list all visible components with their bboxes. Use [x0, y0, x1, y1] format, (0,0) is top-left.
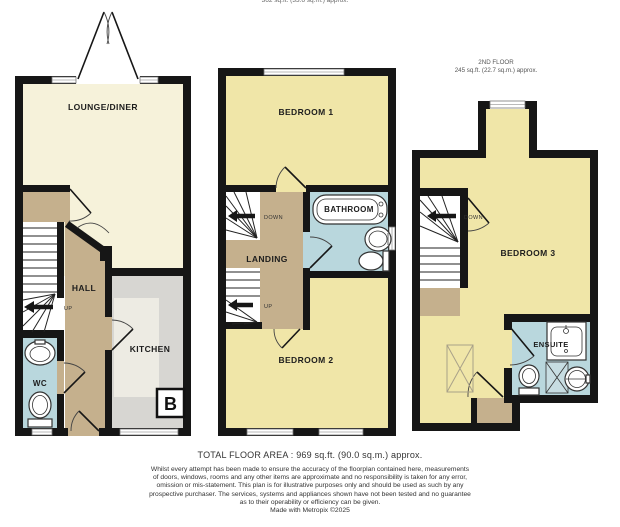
- bedroom2-room-label: BEDROOM 2: [278, 355, 333, 365]
- ground-stairs: [23, 222, 57, 332]
- wall: [537, 150, 598, 158]
- bedroom3-dormer: [486, 109, 529, 158]
- wall: [105, 268, 191, 276]
- disclaimer: Whilst every attempt has been made to en…: [0, 466, 620, 515]
- kitchen-room-label: KITCHEN: [130, 344, 171, 354]
- bedroom1-room-label: BEDROOM 1: [278, 107, 333, 117]
- ensuite-room-label: ENSUITE: [533, 340, 568, 349]
- toilet-icon: [28, 392, 52, 427]
- bedroom2-room: [226, 329, 388, 428]
- disclaimer-line: omission or mis-statement. This plan is …: [0, 482, 620, 490]
- stairs-down-label: DOWN: [464, 215, 483, 221]
- wall: [303, 185, 310, 235]
- bedroom1-room: [226, 76, 388, 188]
- wall: [15, 185, 70, 192]
- wall: [218, 68, 226, 436]
- boiler-badge: B: [157, 389, 184, 417]
- stairs-up-label: UP: [264, 304, 272, 310]
- stairs-down-label: DOWN: [264, 215, 283, 221]
- wc-room-label: WC: [33, 379, 47, 388]
- wall: [471, 398, 477, 423]
- first-floor-plan: BEDROOM 1 DOWN LANDING UP BATHROOM BEDRO…: [218, 68, 396, 436]
- wall: [504, 314, 598, 322]
- round-basin-icon: [565, 367, 590, 391]
- wall: [57, 222, 64, 298]
- wall: [460, 196, 468, 288]
- stair-bottom-landing: [420, 288, 460, 316]
- credit-line: Made with Metropix ©2025: [0, 507, 620, 515]
- bedroom1-door-opening: [276, 185, 306, 192]
- wall: [100, 246, 112, 261]
- disclaimer-line: prospective purchaser. The services, sys…: [0, 491, 620, 499]
- french-doors-icon: [78, 12, 138, 79]
- wall: [412, 423, 520, 431]
- wall: [590, 150, 598, 403]
- bathroom-room-label: BATHROOM: [324, 205, 374, 214]
- wc-door-opening: [57, 361, 64, 394]
- disclaimer-line: as to their operability or efficiency ca…: [0, 499, 620, 507]
- wall: [218, 428, 396, 436]
- kitchen-door-opening: [105, 317, 112, 350]
- second-floor-title: 2ND FLOOR: [478, 59, 514, 66]
- floorplan-canvas: 362 sq.ft. (33.6 sq.m.) approx.: [0, 0, 620, 450]
- wall: [412, 150, 478, 158]
- toilet-icon: [519, 365, 539, 395]
- stair-top-landing: [23, 192, 70, 222]
- bedroom3-room-label: BEDROOM 3: [500, 248, 555, 258]
- front-door-opening: [68, 428, 99, 436]
- ground-floor-plan: B LOUNGE/DINER HALL UP KITCHEN WC: [15, 12, 191, 436]
- lounge-room-label: LOUNGE/DINER: [68, 102, 138, 112]
- wall: [478, 101, 486, 158]
- second-floor-area: 245 sq.ft. (22.7 sq.m.) approx.: [455, 67, 538, 74]
- wall: [15, 76, 23, 436]
- bedroom2-room: [310, 278, 388, 335]
- wall: [15, 330, 64, 338]
- wall: [512, 395, 520, 431]
- clipped-area-caption: 362 sq.ft. (33.6 sq.m.) approx.: [262, 0, 349, 4]
- disclaimer-line: Whilst every attempt has been made to en…: [0, 466, 620, 474]
- second-floor-plan: 2ND FLOOR 245 sq.ft. (22.7 sq.m.) approx…: [412, 59, 598, 431]
- hall-room-label: HALL: [72, 283, 96, 293]
- bathroom-door-opening: [303, 232, 310, 268]
- sink-icon: [365, 227, 391, 251]
- stairs-up-label: UP: [64, 306, 72, 312]
- wall: [525, 101, 537, 109]
- landing-room-label: LANDING: [246, 254, 288, 264]
- second-stairs: [420, 196, 460, 288]
- window: [490, 101, 525, 108]
- french-door-opening: [76, 76, 140, 84]
- wall: [183, 76, 191, 436]
- wall: [478, 101, 490, 109]
- total-floor-area: TOTAL FLOOR AREA : 969 sq.ft. (90.0 sq.m…: [0, 450, 620, 460]
- toilet-icon: [359, 251, 389, 271]
- boiler-label: B: [164, 394, 177, 414]
- sink-icon: [25, 340, 55, 365]
- wall: [303, 271, 396, 278]
- wall: [504, 368, 512, 403]
- wall: [412, 188, 468, 196]
- wall: [529, 101, 537, 158]
- disclaimer-line: of doors, windows, rooms and any other i…: [0, 474, 620, 482]
